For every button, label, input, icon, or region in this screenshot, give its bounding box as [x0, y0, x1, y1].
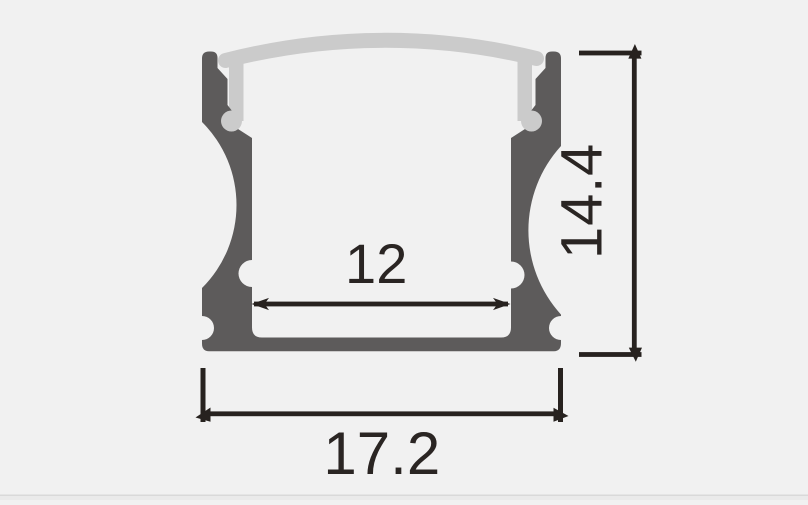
svg-text:17.2: 17.2 [323, 420, 440, 487]
svg-text:12: 12 [345, 232, 407, 295]
svg-text:14.4: 14.4 [550, 143, 615, 259]
